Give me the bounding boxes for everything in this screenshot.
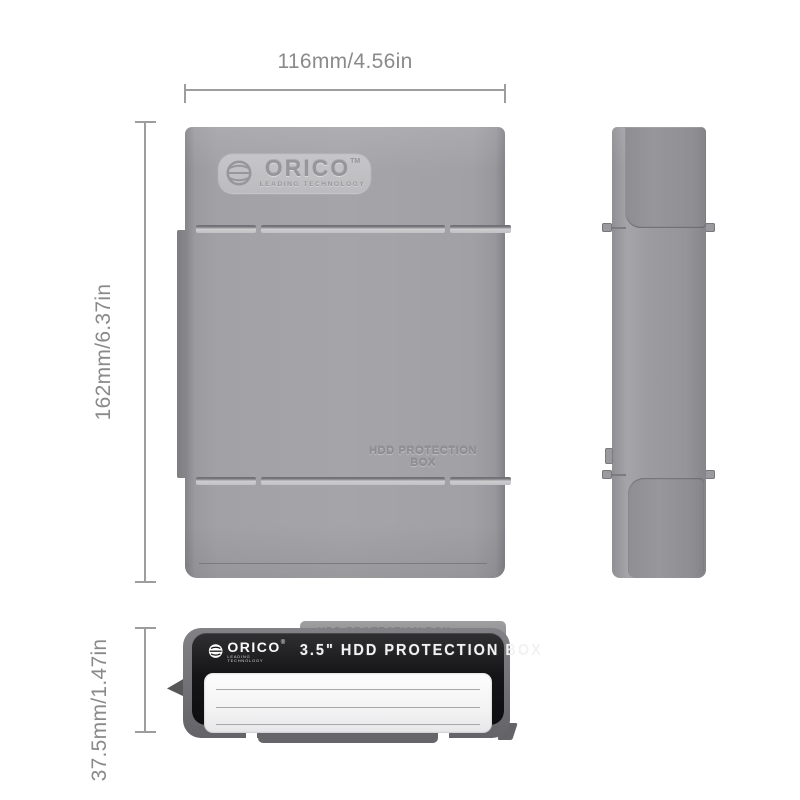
label-orico-globe-icon	[208, 643, 223, 659]
orico-trademark: TM	[350, 158, 360, 165]
side-seam-line	[612, 474, 626, 476]
embossed-product-name: HDD PROTECTION BOX	[364, 445, 482, 469]
bottom-edge-line	[199, 563, 487, 564]
orico-logo-text: ORICO TM LEADING TECHNOLOGY	[260, 157, 366, 189]
writing-line	[216, 724, 480, 725]
label-orico-logo: ORICO ® LEADING TECHNOLOGY	[208, 640, 286, 663]
label-brand-text: ORICO	[227, 640, 280, 654]
label-tagline: LEADING TECHNOLOGY	[227, 655, 285, 663]
height-dimension-label: 162mm/6.37in	[92, 284, 116, 421]
thickness-dimension-line	[144, 627, 146, 733]
front-body: ORICO TM LEADING TECHNOLOGY HDD PROTECTI…	[185, 127, 505, 578]
side-bottom-cap	[628, 478, 704, 578]
height-dimension-line	[144, 121, 146, 583]
product-diagram: 116mm/4.56in 162mm/6.37in 37.5mm/1.47in	[0, 0, 800, 800]
side-latch-bump	[605, 448, 613, 464]
side-view	[598, 127, 722, 582]
dimension-tick	[135, 627, 156, 629]
dimension-tick	[135, 581, 156, 583]
case-foot	[258, 734, 438, 743]
dimension-tick	[504, 84, 506, 103]
clip-tab	[602, 223, 612, 232]
base-seam-groove	[450, 477, 511, 485]
dimension-tick	[184, 84, 186, 103]
dimension-tick	[135, 731, 156, 733]
dimension-tick	[135, 121, 156, 123]
lid-seam-groove	[196, 225, 256, 233]
lid-seam-groove	[450, 225, 511, 233]
base-seam-groove	[196, 477, 256, 485]
writing-line	[216, 689, 480, 690]
width-dimension-label: 116mm/4.56in	[185, 50, 505, 74]
thickness-dimension-label: 37.5mm/1.47in	[88, 639, 112, 782]
writing-panel	[204, 673, 492, 733]
label-registered-mark: ®	[281, 640, 285, 646]
orico-brand-text: ORICO	[265, 157, 350, 180]
base-seam-groove	[261, 477, 445, 485]
side-lid-cap	[625, 127, 706, 228]
label-title: 3.5" HDD PROTECTION BOX	[300, 643, 543, 660]
label-header-row: ORICO ® LEADING TECHNOLOGY 3.5" HDD PROT…	[208, 640, 494, 662]
clip-tab	[602, 470, 612, 479]
label-panel: ORICO ® LEADING TECHNOLOGY 3.5" HDD PROT…	[192, 633, 504, 725]
bottom-view: HDD PROTECTION BOX ORICO	[160, 615, 525, 760]
orico-tagline: LEADING TECHNOLOGY	[260, 182, 366, 189]
writing-line	[216, 707, 480, 708]
front-view: ORICO TM LEADING TECHNOLOGY HDD PROTECTI…	[177, 127, 517, 582]
width-dimension-line	[184, 89, 506, 91]
lid-seam-groove	[261, 225, 445, 233]
side-seam-line	[612, 227, 626, 229]
clip-tab	[705, 223, 715, 232]
orico-logo-plate: ORICO TM LEADING TECHNOLOGY	[218, 153, 371, 193]
orico-globe-icon	[224, 158, 254, 188]
clip-tab	[705, 470, 715, 479]
